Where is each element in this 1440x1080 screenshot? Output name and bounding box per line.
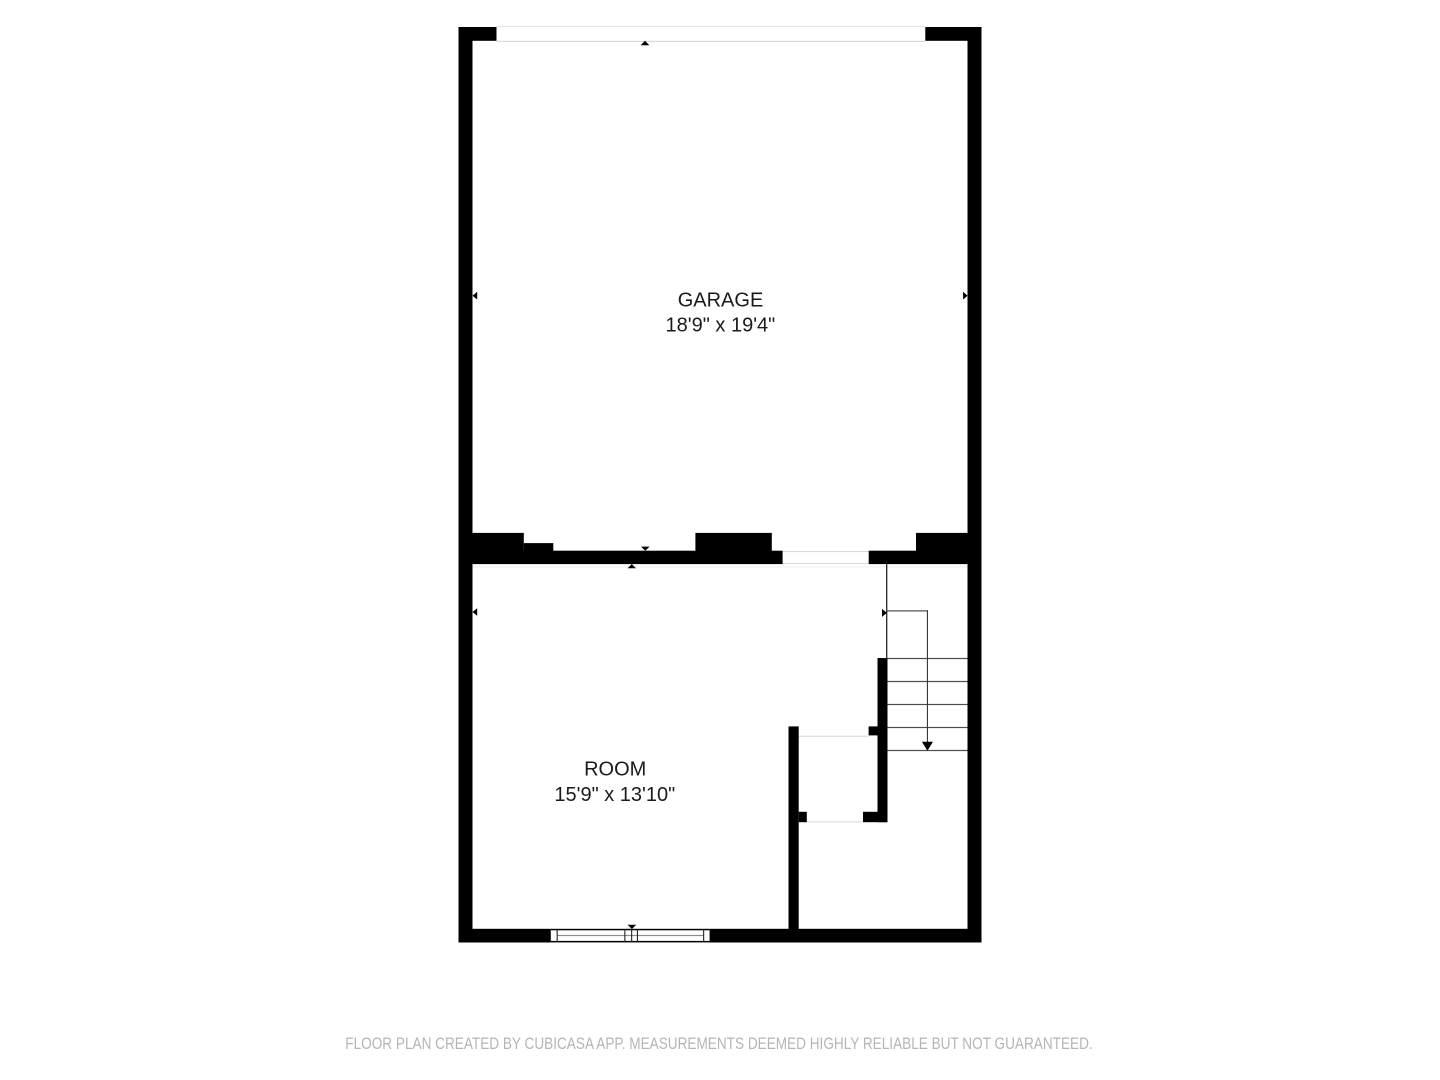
svg-text:ROOM: ROOM (584, 758, 646, 780)
svg-text:18'9" x 19'4": 18'9" x 19'4" (666, 314, 776, 336)
svg-text:15'9" x 13'10": 15'9" x 13'10" (554, 784, 675, 806)
svg-text:FLOOR PLAN CREATED BY CUBICASA: FLOOR PLAN CREATED BY CUBICASA APP. MEAS… (345, 1034, 1092, 1053)
svg-text:GARAGE: GARAGE (678, 290, 764, 312)
